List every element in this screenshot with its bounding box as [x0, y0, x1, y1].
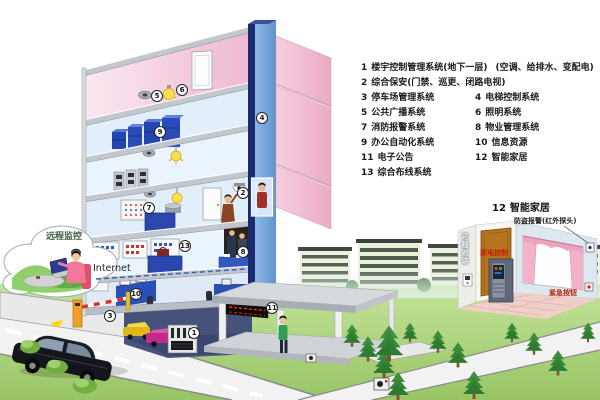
smart-home-num: 12	[492, 203, 506, 214]
intercom-label: 可视对讲	[460, 233, 470, 265]
fire-alarm-panel	[121, 200, 146, 220]
marker-11: 11	[266, 302, 278, 314]
marker-10: 10	[130, 288, 142, 300]
top-floor-door	[192, 51, 212, 90]
marker-5: 5	[151, 90, 163, 102]
marker-1: 1	[188, 327, 200, 339]
elevator-car	[252, 178, 273, 216]
ground-camera-device	[306, 354, 316, 362]
burglar-alarm-label: 防盗报警(红外探头)	[514, 216, 576, 226]
marker-8: 8	[237, 246, 249, 258]
building-right-wall	[276, 36, 331, 229]
internet-label: Internet	[93, 263, 131, 274]
legend: 1 楼宇控制管理系统(地下一层) (空调、给排水、变配电) 2 综合保安(门禁、…	[361, 61, 599, 181]
drum-equipment	[165, 204, 181, 214]
intelligent-building-diagram: 1 楼宇控制管理系统(地下一层) (空调、给排水、变配电) 2 综合保安(门禁、…	[0, 0, 600, 400]
legend-row: 11电子公告 12智能家居	[361, 151, 599, 166]
legend-row: 9办公自动化系统 10信息资源	[361, 136, 599, 151]
office-door	[203, 188, 221, 220]
marker-4: 4	[256, 112, 268, 124]
smart-home-title: 12智能家居	[492, 199, 554, 214]
legend-row: 3停车场管理系统 4电梯控制系统	[361, 91, 599, 106]
marker-6: 6	[176, 84, 188, 96]
ground-camera-device	[374, 378, 389, 390]
legend-row: 1 楼宇控制管理系统(地下一层) (空调、给排水、变配电)	[361, 61, 599, 76]
marker-13: 13	[179, 240, 191, 252]
legend-label: 楼宇控制管理系统(地下一层)	[371, 61, 487, 76]
emergency-button-device	[585, 283, 593, 291]
legend-row: 7消防报警系统 8物业管理系统	[361, 121, 599, 136]
smart-home-inset	[458, 221, 597, 319]
marker-3: 3	[104, 310, 116, 322]
legend-num: 1	[361, 61, 367, 76]
legend-row: 5公共广播系统 6照明系统	[361, 106, 599, 121]
legend-row: 2 综合保安(门禁、巡更、闭路电视)	[361, 76, 599, 91]
speaker-icon	[139, 91, 152, 99]
legend-row: 13 综合布线系统	[361, 166, 599, 181]
marker-2: 2	[237, 187, 249, 199]
marker-9: 9	[154, 126, 166, 138]
elevator-shaft	[248, 20, 276, 306]
emergency-button-label: 紧急按钮	[549, 288, 577, 298]
appliance-control-cabinet	[489, 259, 513, 302]
legend-note: (空调、给排水、变配电)	[496, 61, 594, 76]
appliance-control-label: 家电控制	[480, 248, 508, 258]
intercom-device	[463, 274, 472, 286]
remote-monitoring-label: 远程监控	[46, 229, 82, 242]
marker-7: 7	[143, 202, 155, 214]
